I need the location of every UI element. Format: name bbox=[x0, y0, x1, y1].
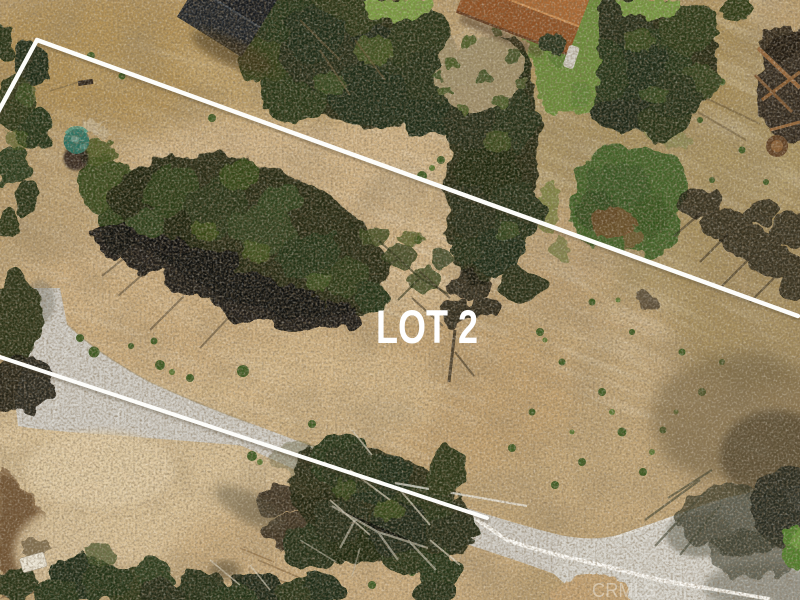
svg-text:CRMLS: CRMLS bbox=[592, 580, 656, 600]
svg-text:LOT 2: LOT 2 bbox=[376, 300, 478, 353]
